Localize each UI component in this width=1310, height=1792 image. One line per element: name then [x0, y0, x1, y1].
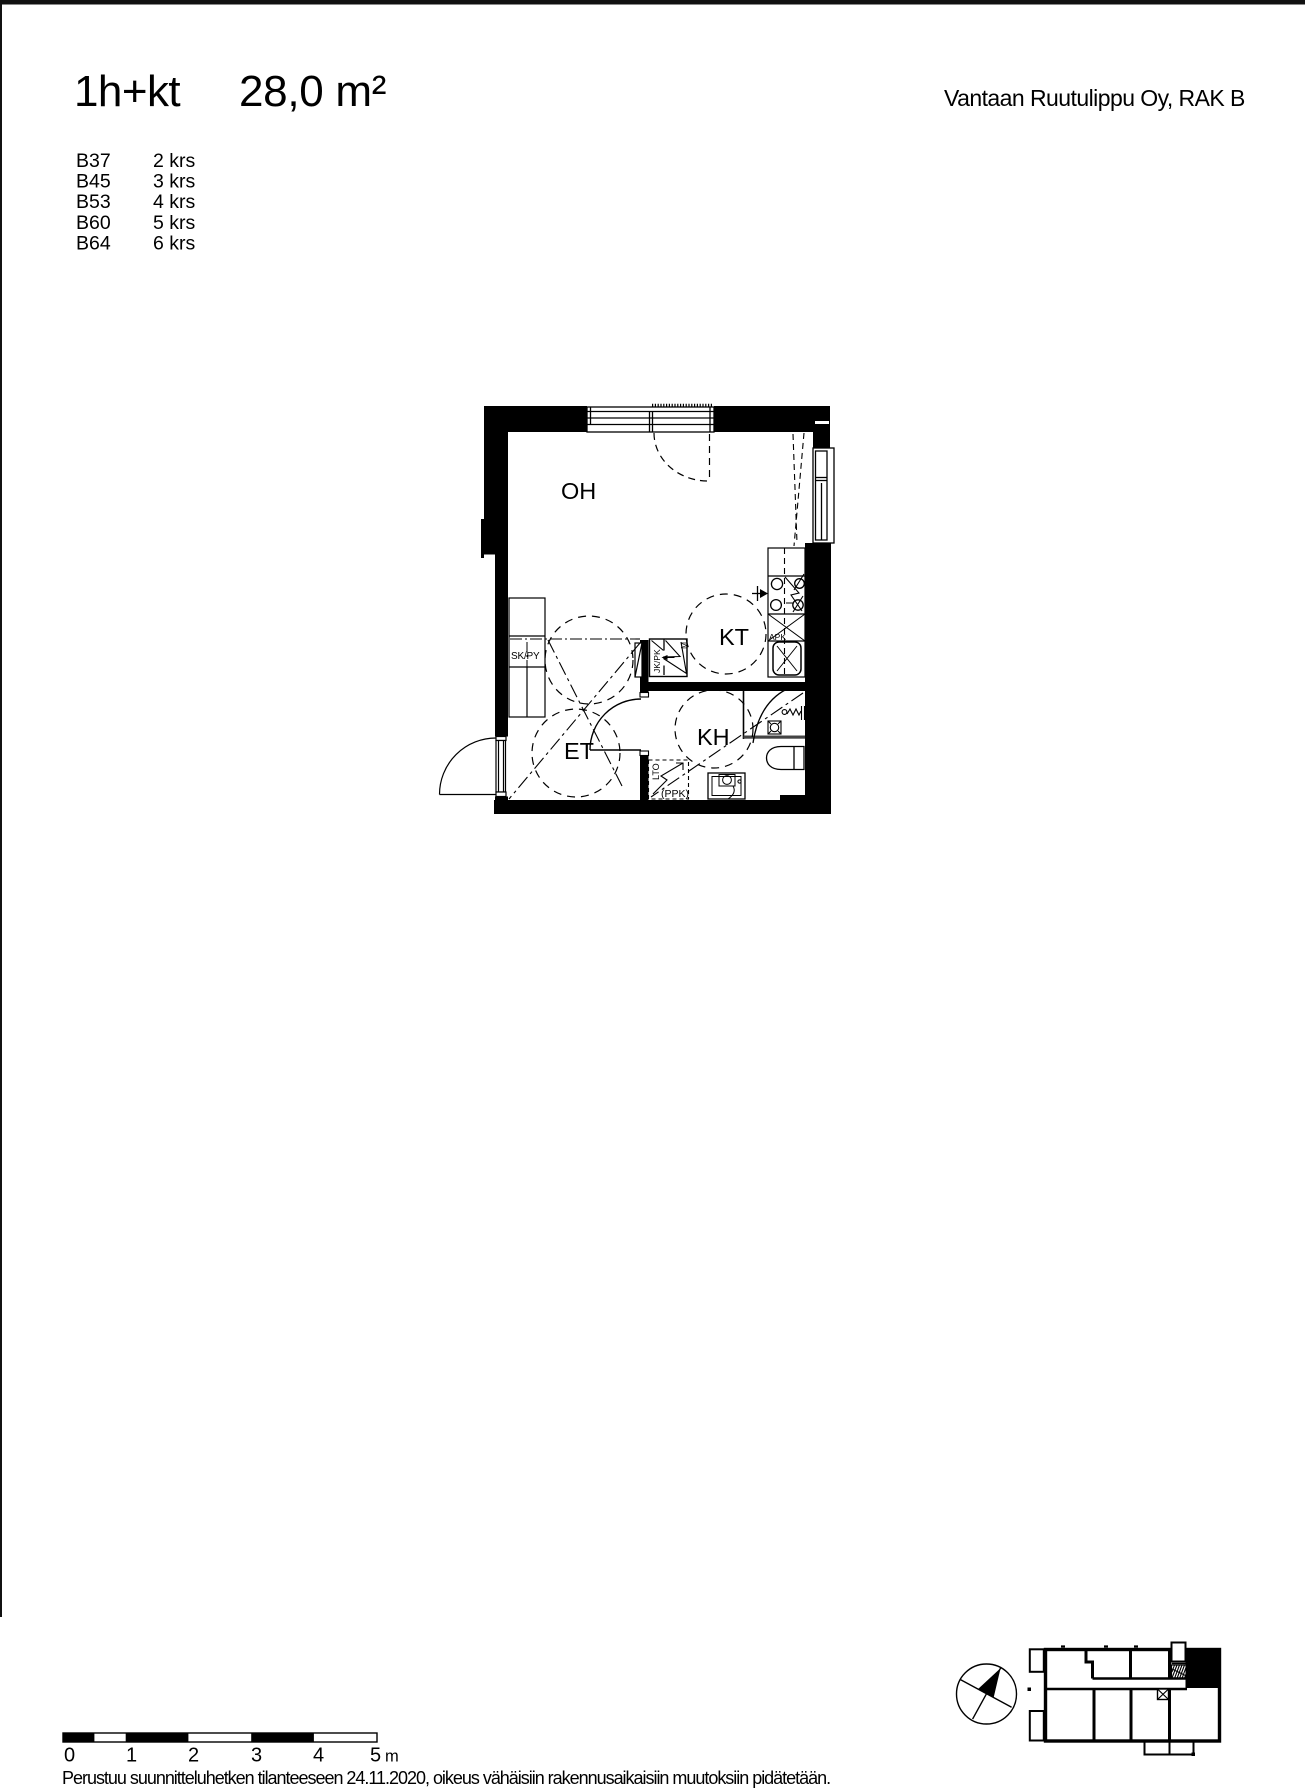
svg-text:B37: B37 [76, 150, 111, 172]
svg-text:5 krs: 5 krs [153, 212, 196, 234]
svg-text:LTO: LTO [651, 763, 661, 780]
svg-text:28,0 m²: 28,0 m² [239, 67, 386, 116]
svg-text:B45: B45 [76, 171, 111, 193]
svg-text:B60: B60 [76, 212, 111, 234]
svg-text:3 krs: 3 krs [153, 171, 196, 193]
svg-text:B53: B53 [76, 191, 111, 213]
svg-text:OH: OH [561, 478, 596, 504]
svg-text:(PPK): (PPK) [661, 788, 689, 800]
svg-text:1: 1 [126, 1745, 137, 1767]
svg-text:ET: ET [564, 738, 594, 764]
svg-text:5: 5 [370, 1745, 381, 1767]
svg-text:JK/PK: JK/PK [652, 649, 662, 673]
svg-text:4 krs: 4 krs [153, 191, 196, 213]
svg-text:SK/PY: SK/PY [511, 651, 540, 662]
svg-text:2: 2 [188, 1745, 199, 1767]
svg-text:KH: KH [697, 724, 730, 750]
svg-text:Vantaan Ruutulippu Oy, RAK B: Vantaan Ruutulippu Oy, RAK B [944, 85, 1245, 111]
svg-text:APK: APK [769, 632, 786, 642]
svg-text:4: 4 [313, 1745, 324, 1767]
svg-text:B64: B64 [76, 232, 111, 254]
svg-text:2 krs: 2 krs [153, 150, 196, 172]
svg-text:m: m [385, 1748, 399, 1766]
svg-text:1h+kt: 1h+kt [74, 67, 180, 116]
svg-text:3: 3 [251, 1745, 262, 1767]
svg-text:KT: KT [719, 624, 749, 650]
svg-text:6 krs: 6 krs [153, 232, 196, 254]
svg-text:0: 0 [64, 1745, 75, 1767]
svg-text:Perustuu suunnitteluhetken til: Perustuu suunnitteluhetken tilanteeseen … [62, 1768, 830, 1788]
